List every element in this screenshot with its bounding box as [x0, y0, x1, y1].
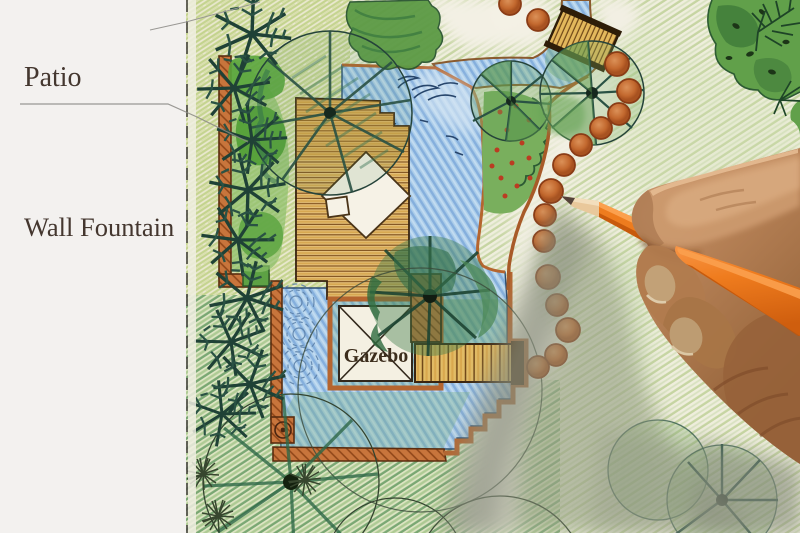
svg-text:Patio: Patio — [24, 62, 82, 93]
svg-text:Wall Fountain: Wall Fountain — [24, 212, 174, 242]
svg-text:Gazebo: Gazebo — [344, 345, 408, 367]
